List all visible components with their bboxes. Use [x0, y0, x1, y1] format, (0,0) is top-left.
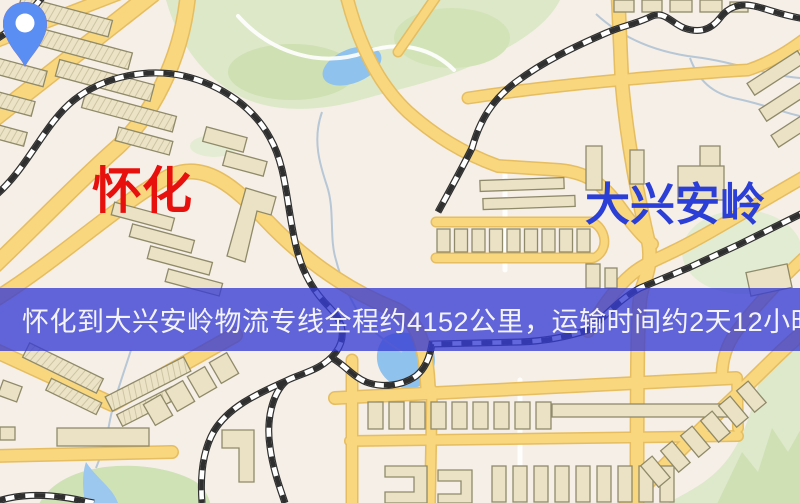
route-info-text: 怀化到大兴安岭物流专线全程约4152公里，运输时间约2天12小时.	[22, 300, 800, 339]
map-canvas	[0, 0, 800, 503]
route-info-banner: 怀化到大兴安岭物流专线全程约4152公里，运输时间约2天12小时.	[0, 288, 800, 351]
origin-city-label: 怀化	[92, 166, 192, 216]
destination-pin-icon	[0, 0, 50, 70]
logistics-map-screenshot: 怀化 大兴安岭 怀化到大兴安岭物流专线全程约4152公里，运输时间约2天12小时…	[0, 0, 800, 503]
destination-city-label: 大兴安岭	[585, 182, 765, 227]
